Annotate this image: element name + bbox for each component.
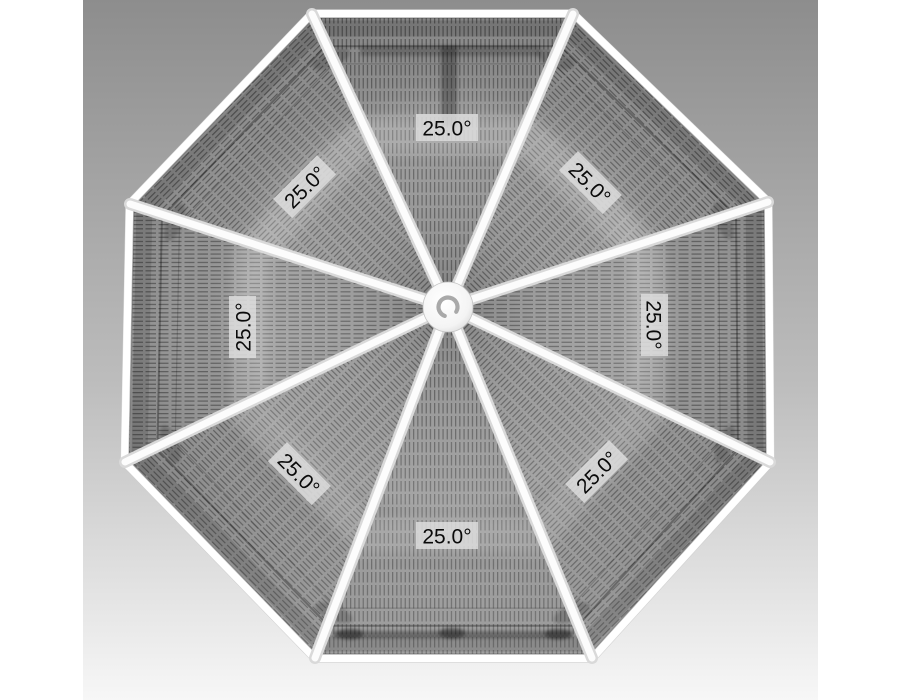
pitch-label-text: 25.0° bbox=[422, 526, 471, 549]
roof-plan-rendering: 25.0°25.0°25.0°25.0°25.0°25.0°25.0°25.0° bbox=[0, 0, 900, 700]
beam-shadow bbox=[545, 629, 571, 640]
pitch-label: 25.0° bbox=[641, 294, 668, 356]
pitch-label-text: 25.0° bbox=[642, 300, 665, 349]
pitch-label: 25.0° bbox=[416, 114, 478, 141]
center-hub-cap bbox=[423, 282, 473, 332]
pitch-label: 25.0° bbox=[416, 522, 478, 549]
pitch-label: 25.0° bbox=[229, 296, 256, 358]
render-viewport: 25.0°25.0°25.0°25.0°25.0°25.0°25.0°25.0° bbox=[0, 0, 900, 700]
beam-shadow bbox=[439, 628, 465, 639]
pitch-label-text: 25.0° bbox=[233, 302, 256, 351]
beam-shadow bbox=[337, 629, 363, 640]
pitch-label-text: 25.0° bbox=[422, 118, 471, 141]
center-hub bbox=[423, 282, 473, 332]
